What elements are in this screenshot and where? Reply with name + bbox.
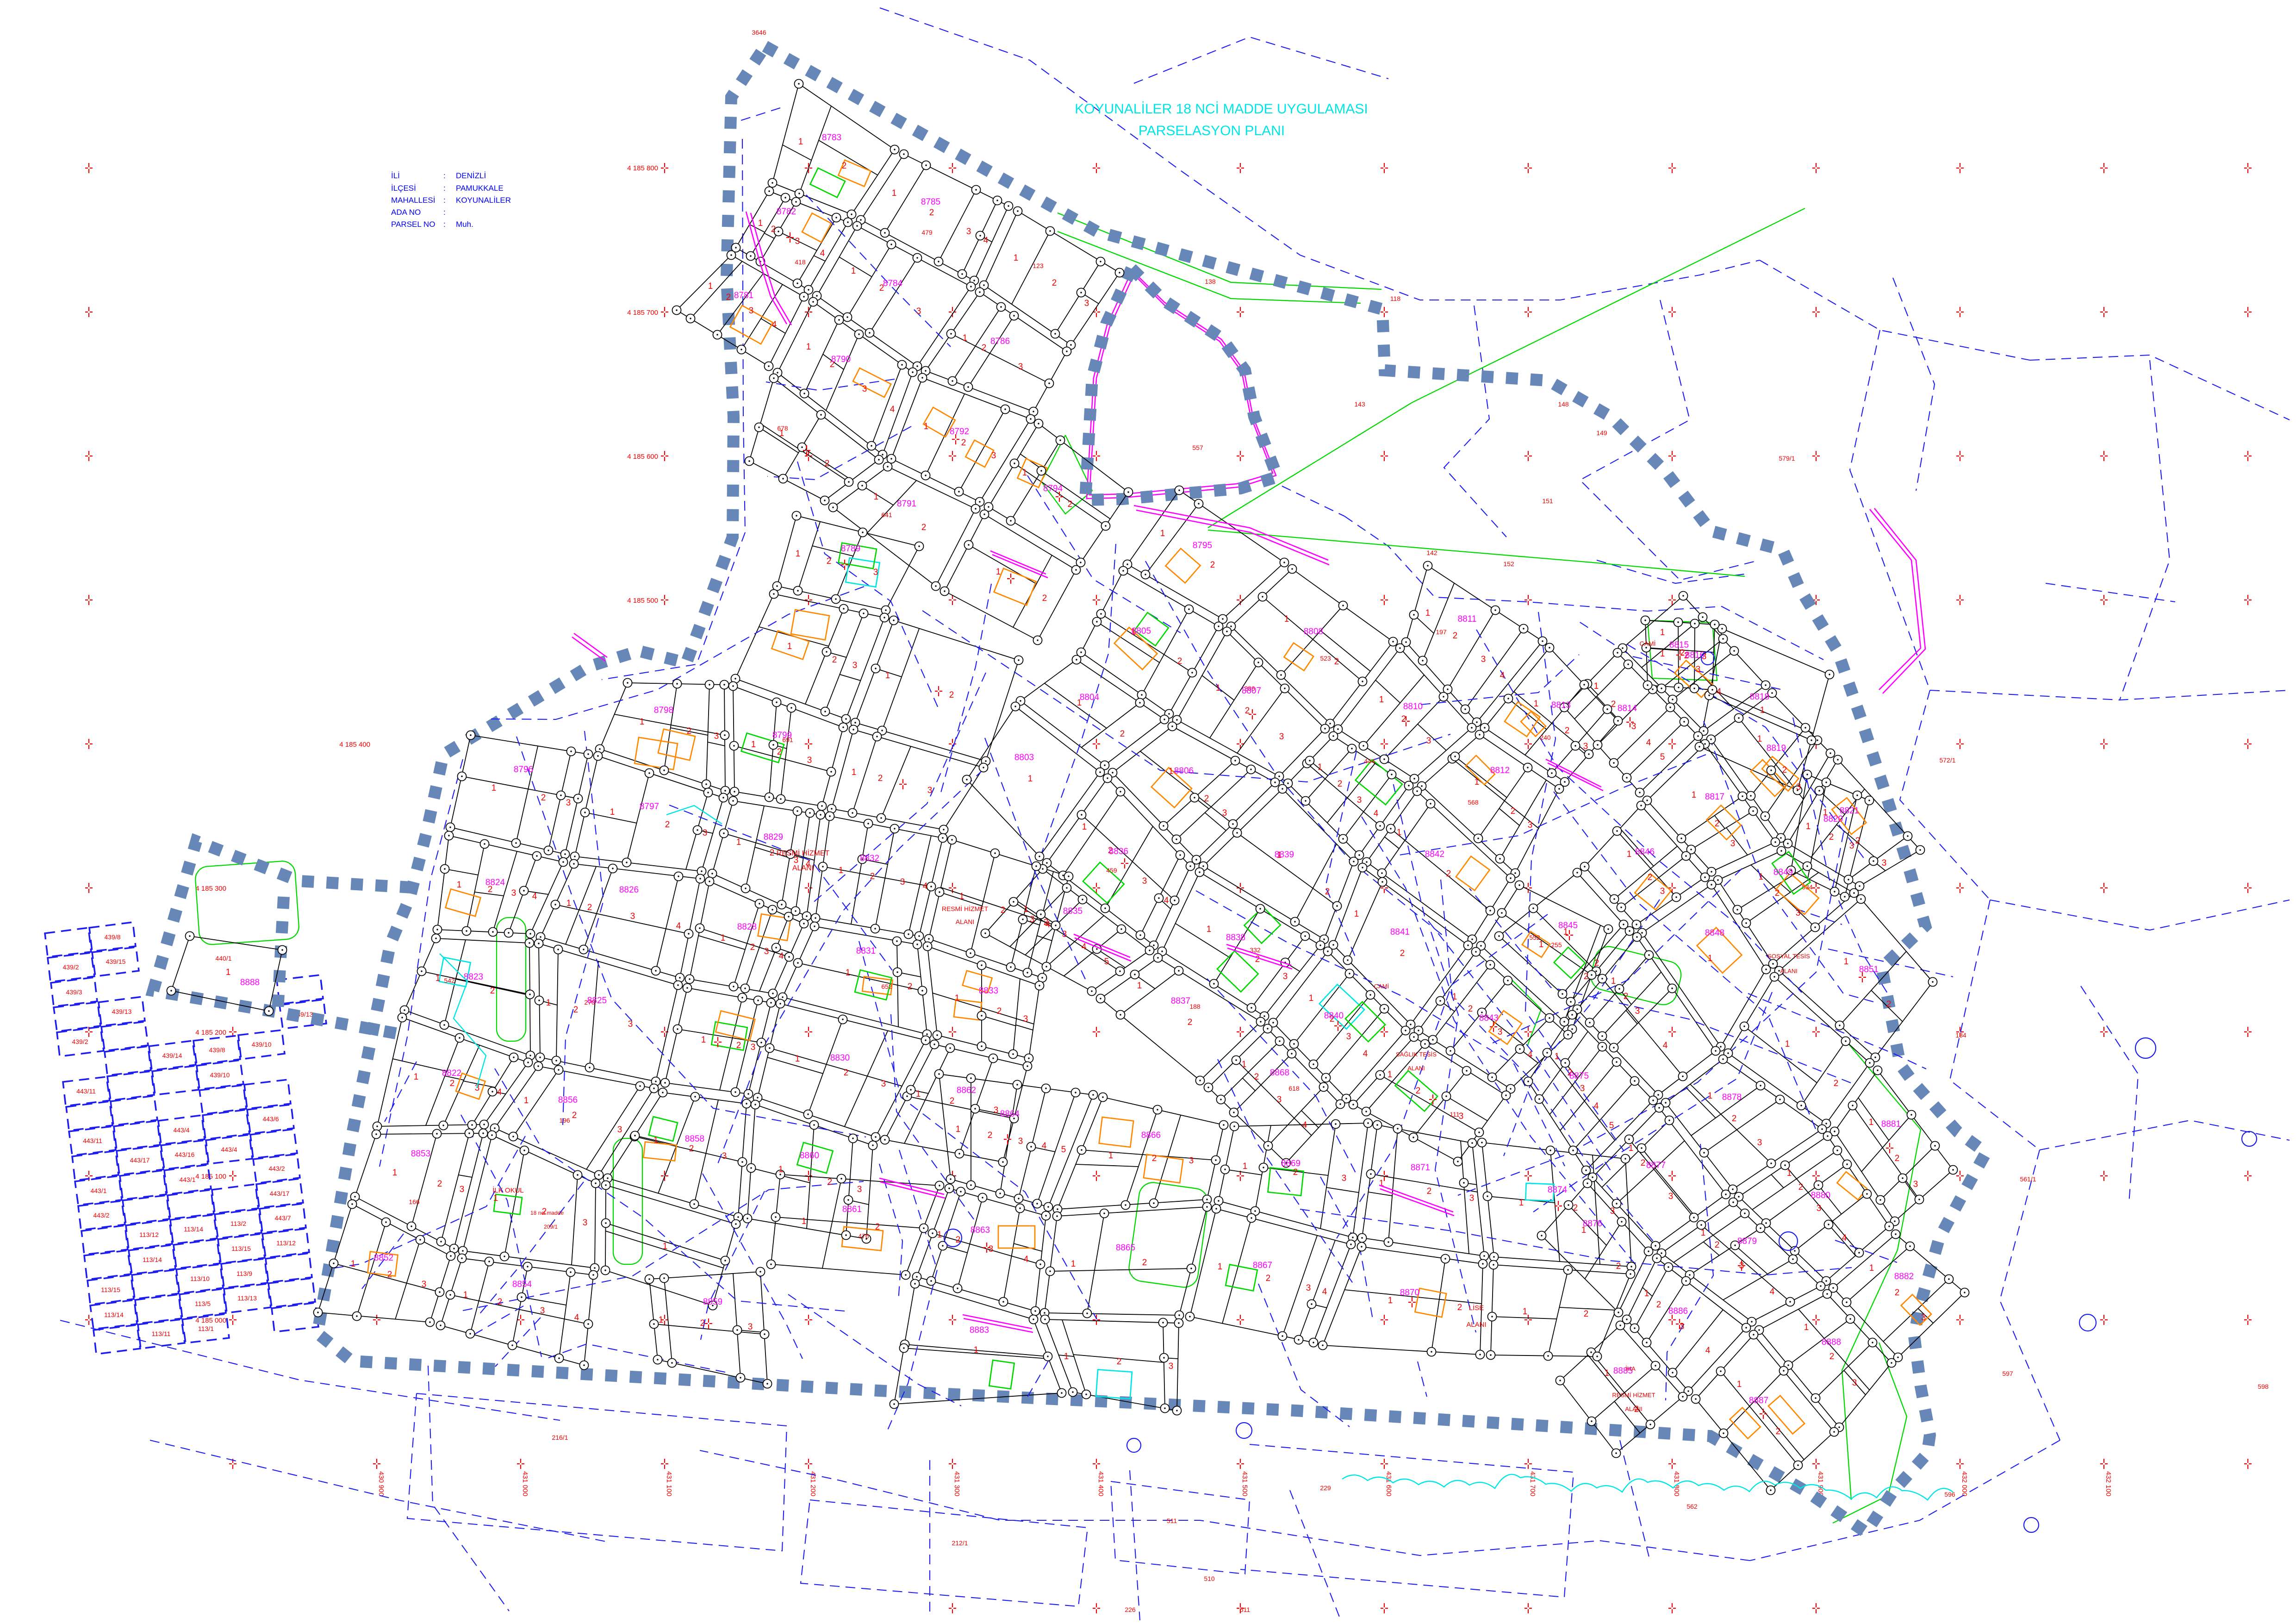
svg-text:2: 2	[827, 556, 832, 566]
svg-text:2: 2	[1611, 700, 1616, 709]
svg-text:8853: 8853	[411, 1149, 430, 1159]
svg-text:8851: 8851	[1859, 965, 1879, 974]
svg-text:2: 2	[1594, 958, 1599, 968]
svg-text:8833: 8833	[979, 986, 998, 996]
svg-text:2: 2	[541, 793, 546, 803]
svg-text:4: 4	[1594, 1101, 1599, 1111]
svg-text:2: 2	[1829, 832, 1834, 842]
svg-text:1: 1	[1605, 1368, 1610, 1378]
svg-text:8786: 8786	[990, 337, 1010, 346]
svg-text:2: 2	[1829, 1352, 1835, 1362]
svg-text:1: 1	[795, 1054, 800, 1064]
svg-text:1: 1	[708, 281, 713, 291]
svg-text:2: 2	[1042, 593, 1047, 603]
svg-text:ALANI: ALANI	[1466, 1321, 1486, 1329]
svg-text:3: 3	[1882, 858, 1887, 868]
svg-text:166: 166	[409, 1198, 420, 1206]
svg-text:8795: 8795	[1193, 541, 1212, 550]
svg-text:2: 2	[1204, 794, 1209, 804]
svg-text:1: 1	[916, 1089, 921, 1099]
svg-text:439/3: 439/3	[66, 988, 82, 996]
svg-text:8874: 8874	[1548, 1185, 1568, 1195]
svg-text:148: 148	[1558, 400, 1569, 408]
svg-text:1: 1	[885, 671, 890, 681]
svg-text:ALANI: ALANI	[1407, 1065, 1425, 1072]
svg-text:8824: 8824	[485, 878, 505, 887]
svg-text:138: 138	[1205, 278, 1216, 285]
svg-text:1: 1	[1611, 976, 1616, 986]
svg-text:3: 3	[807, 756, 812, 765]
svg-text:196: 196	[559, 1117, 570, 1124]
svg-text:8817: 8817	[1705, 792, 1724, 802]
svg-text:3: 3	[1796, 782, 1801, 792]
svg-text:8881: 8881	[1881, 1119, 1901, 1129]
svg-text:İLÇESİ: İLÇESİ	[391, 184, 416, 193]
svg-text:3: 3	[764, 947, 769, 956]
svg-text:2: 2	[1446, 869, 1451, 879]
svg-text:8792: 8792	[950, 427, 969, 437]
svg-text:2: 2	[982, 343, 987, 353]
svg-text:113/1: 113/1	[198, 1325, 214, 1332]
svg-text:523: 523	[1320, 655, 1331, 662]
svg-text:1: 1	[457, 880, 462, 890]
svg-text:8845: 8845	[1558, 921, 1578, 931]
svg-text:3: 3	[1631, 722, 1636, 731]
svg-text:597: 597	[2002, 1370, 2013, 1377]
svg-text:3: 3	[1023, 1014, 1028, 1024]
svg-text:2: 2	[949, 690, 954, 700]
svg-text:1: 1	[1692, 790, 1697, 800]
svg-text:1: 1	[851, 266, 856, 276]
svg-text:8856: 8856	[558, 1095, 578, 1105]
svg-text:RESMİ HİZMET: RESMİ HİZMET	[1612, 1392, 1655, 1399]
svg-text:113/9: 113/9	[236, 1270, 252, 1277]
svg-text:3: 3	[1426, 736, 1431, 746]
svg-text:2: 2	[870, 872, 875, 881]
svg-text:1: 1	[1627, 849, 1632, 859]
svg-text:1: 1	[787, 642, 792, 651]
svg-text:1: 1	[1806, 822, 1811, 831]
svg-text:113/11: 113/11	[152, 1330, 171, 1337]
svg-text:443/16: 443/16	[175, 1151, 195, 1158]
svg-text:113/2: 113/2	[230, 1220, 246, 1227]
svg-text:511: 511	[1240, 1606, 1251, 1613]
svg-text:579/1: 579/1	[1779, 455, 1795, 462]
svg-text:1: 1	[1785, 1039, 1790, 1049]
svg-text:CAMİ: CAMİ	[1640, 639, 1656, 647]
svg-text:8876: 8876	[1583, 1219, 1602, 1229]
svg-text:3: 3	[1342, 1174, 1347, 1183]
svg-text:3: 3	[994, 1106, 999, 1115]
svg-text:8829: 8829	[764, 832, 783, 842]
svg-text:2: 2	[1616, 1262, 1621, 1271]
svg-text:18 nci madde: 18 nci madde	[530, 1210, 564, 1216]
svg-text:4: 4	[772, 320, 777, 330]
svg-text:4: 4	[1374, 809, 1379, 818]
svg-text:113/10: 113/10	[190, 1275, 210, 1282]
svg-text:2: 2	[1624, 992, 1629, 1001]
svg-text:3: 3	[583, 1218, 588, 1228]
svg-text:2: 2	[777, 747, 782, 757]
svg-text:4: 4	[983, 236, 989, 245]
svg-text:3: 3	[1913, 1180, 1918, 1189]
svg-text:4: 4	[676, 921, 681, 931]
svg-text:4 185 800: 4 185 800	[627, 164, 658, 172]
svg-text:652: 652	[881, 983, 892, 990]
svg-text:1: 1	[1022, 468, 1027, 478]
svg-text:1: 1	[414, 1072, 419, 1082]
svg-text:8858: 8858	[685, 1134, 704, 1144]
svg-text:596: 596	[1944, 1491, 1955, 1498]
svg-text:598: 598	[2258, 1383, 2269, 1390]
svg-text:111: 111	[1450, 1111, 1459, 1118]
svg-text:2: 2	[988, 1131, 993, 1140]
svg-text:557: 557	[1192, 444, 1203, 451]
svg-text:3: 3	[1921, 1313, 1926, 1323]
svg-text:3: 3	[1062, 930, 1067, 939]
svg-text:3: 3	[751, 1043, 756, 1052]
svg-text:3: 3	[540, 1306, 545, 1316]
svg-text:8825: 8825	[587, 996, 607, 1006]
svg-text:229: 229	[1320, 1484, 1331, 1492]
svg-text:1: 1	[1708, 1091, 1713, 1101]
svg-text:439/8: 439/8	[104, 933, 120, 941]
svg-text:3: 3	[1222, 808, 1227, 818]
svg-text:2: 2	[1401, 714, 1406, 724]
svg-text:568: 568	[1468, 799, 1479, 806]
svg-text:459: 459	[1106, 867, 1117, 874]
svg-text:8861: 8861	[842, 1205, 862, 1214]
svg-text:443/4: 443/4	[173, 1126, 189, 1134]
svg-text:2: 2	[1001, 906, 1006, 915]
svg-text:641: 641	[881, 511, 892, 518]
svg-text:2: 2	[950, 1096, 955, 1106]
svg-text:443/11: 443/11	[83, 1137, 102, 1144]
svg-text:3: 3	[852, 661, 858, 670]
svg-text:2: 2	[1457, 1303, 1462, 1312]
svg-text:1: 1	[778, 1165, 784, 1174]
svg-text:3: 3	[1169, 1362, 1174, 1371]
svg-text:2: 2	[1068, 500, 1073, 509]
svg-text:8815: 8815	[1669, 640, 1689, 650]
svg-text:431 300: 431 300	[953, 1471, 961, 1496]
svg-text:2: 2	[997, 1006, 1002, 1016]
svg-text:2: 2	[1120, 729, 1125, 739]
svg-text:1: 1	[1660, 628, 1665, 637]
svg-text:1: 1	[1388, 1070, 1393, 1080]
svg-text:443/2: 443/2	[93, 1212, 109, 1219]
svg-text:1: 1	[852, 768, 857, 777]
svg-text:209/1: 209/1	[544, 1224, 558, 1230]
svg-text:8860: 8860	[800, 1151, 819, 1161]
svg-text:1: 1	[758, 219, 763, 228]
svg-text:2: 2	[1400, 949, 1405, 958]
svg-text:1: 1	[226, 968, 231, 977]
svg-text:8867: 8867	[1253, 1261, 1272, 1270]
svg-text:8888: 8888	[1822, 1337, 1841, 1347]
svg-text:İLİ: İLİ	[391, 171, 400, 180]
svg-text:SOSYAL TESİS: SOSYAL TESİS	[1767, 953, 1810, 960]
svg-text:3: 3	[1668, 1192, 1674, 1201]
svg-text:3: 3	[460, 1185, 465, 1194]
svg-text:1: 1	[798, 137, 803, 147]
svg-text:2: 2	[573, 1005, 579, 1015]
svg-text:4: 4	[1646, 738, 1651, 748]
svg-text:8869: 8869	[1281, 1159, 1300, 1168]
svg-text:1: 1	[1207, 924, 1212, 934]
svg-text:2: 2	[689, 1144, 694, 1154]
svg-text:3: 3	[1817, 1204, 1822, 1213]
svg-text:1: 1	[1523, 1307, 1528, 1317]
svg-text:431 600: 431 600	[1385, 1471, 1393, 1496]
svg-text:443/1: 443/1	[90, 1187, 106, 1194]
svg-text:8848: 8848	[1705, 928, 1724, 938]
svg-text:1: 1	[1452, 992, 1457, 1002]
svg-text:İHA: İHA	[1625, 1365, 1636, 1372]
svg-text:1: 1	[1844, 957, 1849, 967]
svg-text:1: 1	[956, 1124, 961, 1134]
svg-text:8877: 8877	[1646, 1161, 1666, 1170]
svg-text:2: 2	[1782, 765, 1787, 775]
svg-text:2: 2	[1715, 819, 1720, 829]
svg-text:MAHALLESİ: MAHALLESİ	[391, 196, 435, 205]
svg-text:8832: 8832	[860, 854, 879, 863]
svg-text:8852: 8852	[374, 1253, 393, 1263]
svg-text:8883: 8883	[970, 1325, 989, 1335]
svg-text:2: 2	[1117, 1357, 1122, 1367]
svg-text:3: 3	[1696, 665, 1701, 675]
svg-text:1: 1	[1309, 993, 1314, 1003]
svg-text:8868: 8868	[1270, 1068, 1289, 1078]
svg-text:8887: 8887	[1749, 1396, 1768, 1405]
svg-text:216/1: 216/1	[552, 1434, 568, 1441]
svg-text:2: 2	[1573, 1203, 1578, 1213]
svg-text:1: 1	[736, 837, 741, 847]
svg-text:1: 1	[846, 968, 851, 978]
svg-text:443/1: 443/1	[179, 1176, 195, 1183]
svg-text:3: 3	[703, 828, 708, 838]
svg-text:572/1: 572/1	[1939, 756, 1955, 764]
svg-text:8819: 8819	[1767, 743, 1786, 753]
svg-text::: :	[443, 196, 446, 205]
svg-text:3: 3	[1583, 742, 1588, 751]
svg-text:2: 2	[700, 1318, 705, 1328]
svg-text:1: 1	[1137, 981, 1142, 991]
svg-text:2: 2	[1855, 836, 1860, 846]
svg-text:8886: 8886	[1668, 1306, 1688, 1316]
svg-text:3: 3	[511, 888, 516, 898]
svg-text:1: 1	[1737, 1380, 1742, 1389]
svg-text:113/14: 113/14	[104, 1311, 124, 1318]
svg-text:3: 3	[881, 1079, 886, 1089]
svg-text:4: 4	[1363, 1049, 1368, 1059]
svg-text:510: 510	[1204, 1575, 1215, 1582]
svg-text:3: 3	[630, 912, 635, 921]
svg-text:3: 3	[1528, 820, 1533, 830]
svg-text::: :	[443, 220, 446, 229]
svg-text:4: 4	[1705, 1346, 1711, 1355]
svg-text:3: 3	[1030, 915, 1035, 924]
svg-text:SAĞLIK TESİS: SAĞLIK TESİS	[1396, 1051, 1437, 1058]
svg-text:418: 418	[795, 258, 806, 266]
svg-text:ALANI: ALANI	[956, 918, 974, 925]
svg-text:8810: 8810	[1403, 702, 1423, 712]
svg-text:8799: 8799	[772, 731, 792, 740]
svg-text:142: 142	[1426, 549, 1437, 556]
svg-text:2: 2	[1776, 1427, 1781, 1437]
svg-text:RESMİ HİZMET: RESMİ HİZMET	[777, 849, 830, 857]
svg-text:8866: 8866	[1141, 1131, 1161, 1140]
svg-text:4: 4	[890, 405, 895, 414]
svg-text:2: 2	[1641, 1158, 1646, 1168]
svg-text:8808: 8808	[1304, 627, 1323, 637]
svg-text:4: 4	[1717, 687, 1722, 697]
svg-text:2: 2	[921, 523, 927, 532]
svg-text:2: 2	[1648, 873, 1653, 882]
svg-text:430 900: 430 900	[377, 1471, 385, 1496]
svg-text:3: 3	[628, 1019, 633, 1029]
svg-text:2: 2	[1895, 1288, 1900, 1298]
svg-text:3: 3	[1142, 876, 1147, 886]
svg-text:8854: 8854	[512, 1280, 532, 1289]
svg-text:8812: 8812	[1490, 766, 1510, 775]
svg-text:1: 1	[1318, 762, 1323, 772]
svg-text:4: 4	[532, 892, 537, 901]
svg-text:479: 479	[921, 229, 933, 236]
svg-text:8814: 8814	[1618, 704, 1637, 713]
svg-text:8879: 8879	[1737, 1237, 1757, 1246]
svg-text:1: 1	[1594, 681, 1599, 691]
svg-text:439/10: 439/10	[252, 1041, 272, 1048]
svg-text:113/12: 113/12	[276, 1239, 296, 1247]
svg-text:1: 1	[1869, 1263, 1874, 1273]
svg-text:2: 2	[828, 1177, 833, 1187]
svg-text:1: 1	[892, 188, 897, 198]
svg-text:1: 1	[1425, 608, 1431, 618]
svg-text:4: 4	[574, 1313, 579, 1323]
svg-text:113/15: 113/15	[101, 1286, 120, 1293]
svg-text:3: 3	[714, 731, 719, 741]
svg-text:2: 2	[878, 774, 883, 783]
svg-text:4: 4	[1770, 1287, 1775, 1297]
svg-text:2: 2	[1266, 1274, 1271, 1283]
svg-text:4: 4	[1322, 1287, 1327, 1297]
svg-text:3: 3	[1635, 1006, 1640, 1016]
svg-text:LİSE: LİSE	[1469, 1304, 1484, 1312]
svg-text:542: 542	[444, 977, 455, 984]
svg-text:2: 2	[961, 438, 966, 448]
svg-text:8785: 8785	[921, 197, 940, 207]
svg-text:2: 2	[1210, 560, 1215, 570]
svg-text:CAMİ: CAMİ	[1374, 983, 1389, 990]
svg-text:3: 3	[966, 227, 971, 237]
svg-text:439/2: 439/2	[62, 963, 79, 971]
svg-text:1: 1	[1284, 614, 1289, 624]
svg-text:678: 678	[777, 425, 788, 432]
svg-text:Muh.: Muh.	[456, 220, 473, 229]
svg-text:4 185 700: 4 185 700	[627, 309, 658, 317]
svg-text:431 500: 431 500	[1241, 1471, 1249, 1496]
svg-text:3: 3	[1680, 1322, 1685, 1331]
svg-text:3: 3	[795, 237, 800, 246]
svg-text:3: 3	[857, 1185, 862, 1194]
svg-text:2: 2	[572, 1111, 577, 1120]
svg-text:2: 2	[875, 1222, 880, 1232]
svg-text:152: 152	[1503, 560, 1514, 568]
svg-text:1: 1	[463, 1290, 468, 1300]
svg-text:1: 1	[1169, 767, 1174, 776]
svg-text:4: 4	[1842, 1233, 1847, 1243]
svg-text:8781: 8781	[734, 291, 753, 300]
svg-text:2: 2	[750, 943, 755, 952]
svg-text:1: 1	[1804, 1323, 1809, 1332]
svg-text:2: 2	[1895, 1154, 1900, 1163]
svg-text:618: 618	[1288, 1085, 1300, 1092]
svg-text:2: 2	[1338, 779, 1343, 789]
svg-text:240: 240	[1540, 734, 1551, 741]
svg-text:188: 188	[1189, 1003, 1201, 1010]
svg-text:8835: 8835	[1063, 906, 1083, 916]
svg-text:5: 5	[1061, 1145, 1066, 1155]
svg-text:439/8: 439/8	[209, 1046, 225, 1054]
svg-text:4: 4	[1042, 1141, 1047, 1151]
svg-text:8782: 8782	[777, 207, 796, 217]
svg-text:1: 1	[1354, 909, 1359, 919]
svg-text:1: 1	[1708, 954, 1713, 963]
svg-text:5: 5	[1609, 1121, 1614, 1131]
svg-text:1: 1	[1397, 828, 1402, 837]
svg-text:PARSEL NO: PARSEL NO	[391, 220, 435, 229]
svg-text:1: 1	[351, 1259, 356, 1269]
svg-text:443/2: 443/2	[268, 1165, 285, 1172]
svg-text:8828: 8828	[737, 922, 757, 932]
svg-text:1: 1	[659, 1315, 664, 1325]
svg-text:1: 1	[974, 1345, 979, 1355]
svg-text:431 400: 431 400	[1097, 1471, 1105, 1496]
svg-text:2: 2	[1245, 706, 1250, 716]
svg-text:431 800: 431 800	[1673, 1471, 1680, 1496]
svg-text:3: 3	[1481, 655, 1486, 664]
svg-text:2: 2	[842, 161, 847, 171]
svg-text::: :	[443, 171, 446, 180]
svg-text:2: 2	[1656, 1300, 1661, 1310]
svg-text:8859: 8859	[703, 1297, 722, 1307]
svg-text:1: 1	[546, 998, 551, 1008]
svg-text:8842: 8842	[1425, 849, 1444, 859]
svg-text:3: 3	[1852, 1378, 1857, 1388]
svg-text:8805: 8805	[1132, 626, 1151, 636]
svg-text:1: 1	[1760, 706, 1765, 715]
svg-text:2: 2	[1427, 1187, 1432, 1196]
svg-text:1: 1	[806, 342, 811, 352]
svg-text:RESMİ HİZMET: RESMİ HİZMET	[942, 905, 989, 912]
svg-text:3: 3	[1189, 1156, 1194, 1166]
svg-text:8871: 8871	[1411, 1163, 1430, 1173]
svg-text:2: 2	[908, 982, 913, 992]
svg-text:1: 1	[802, 1217, 807, 1226]
svg-text:1: 1	[1024, 905, 1029, 914]
svg-text:1: 1	[839, 866, 844, 875]
svg-text:443/11: 443/11	[76, 1087, 96, 1095]
svg-text::: :	[443, 184, 446, 193]
svg-text:1: 1	[1028, 774, 1033, 784]
svg-text:8807: 8807	[1242, 686, 1261, 696]
svg-text:1: 1	[1071, 1259, 1076, 1269]
svg-text:1: 1	[1379, 695, 1384, 705]
svg-text:3: 3	[1730, 839, 1736, 849]
svg-text:8791: 8791	[897, 499, 916, 509]
svg-text:2: 2	[1511, 806, 1516, 816]
